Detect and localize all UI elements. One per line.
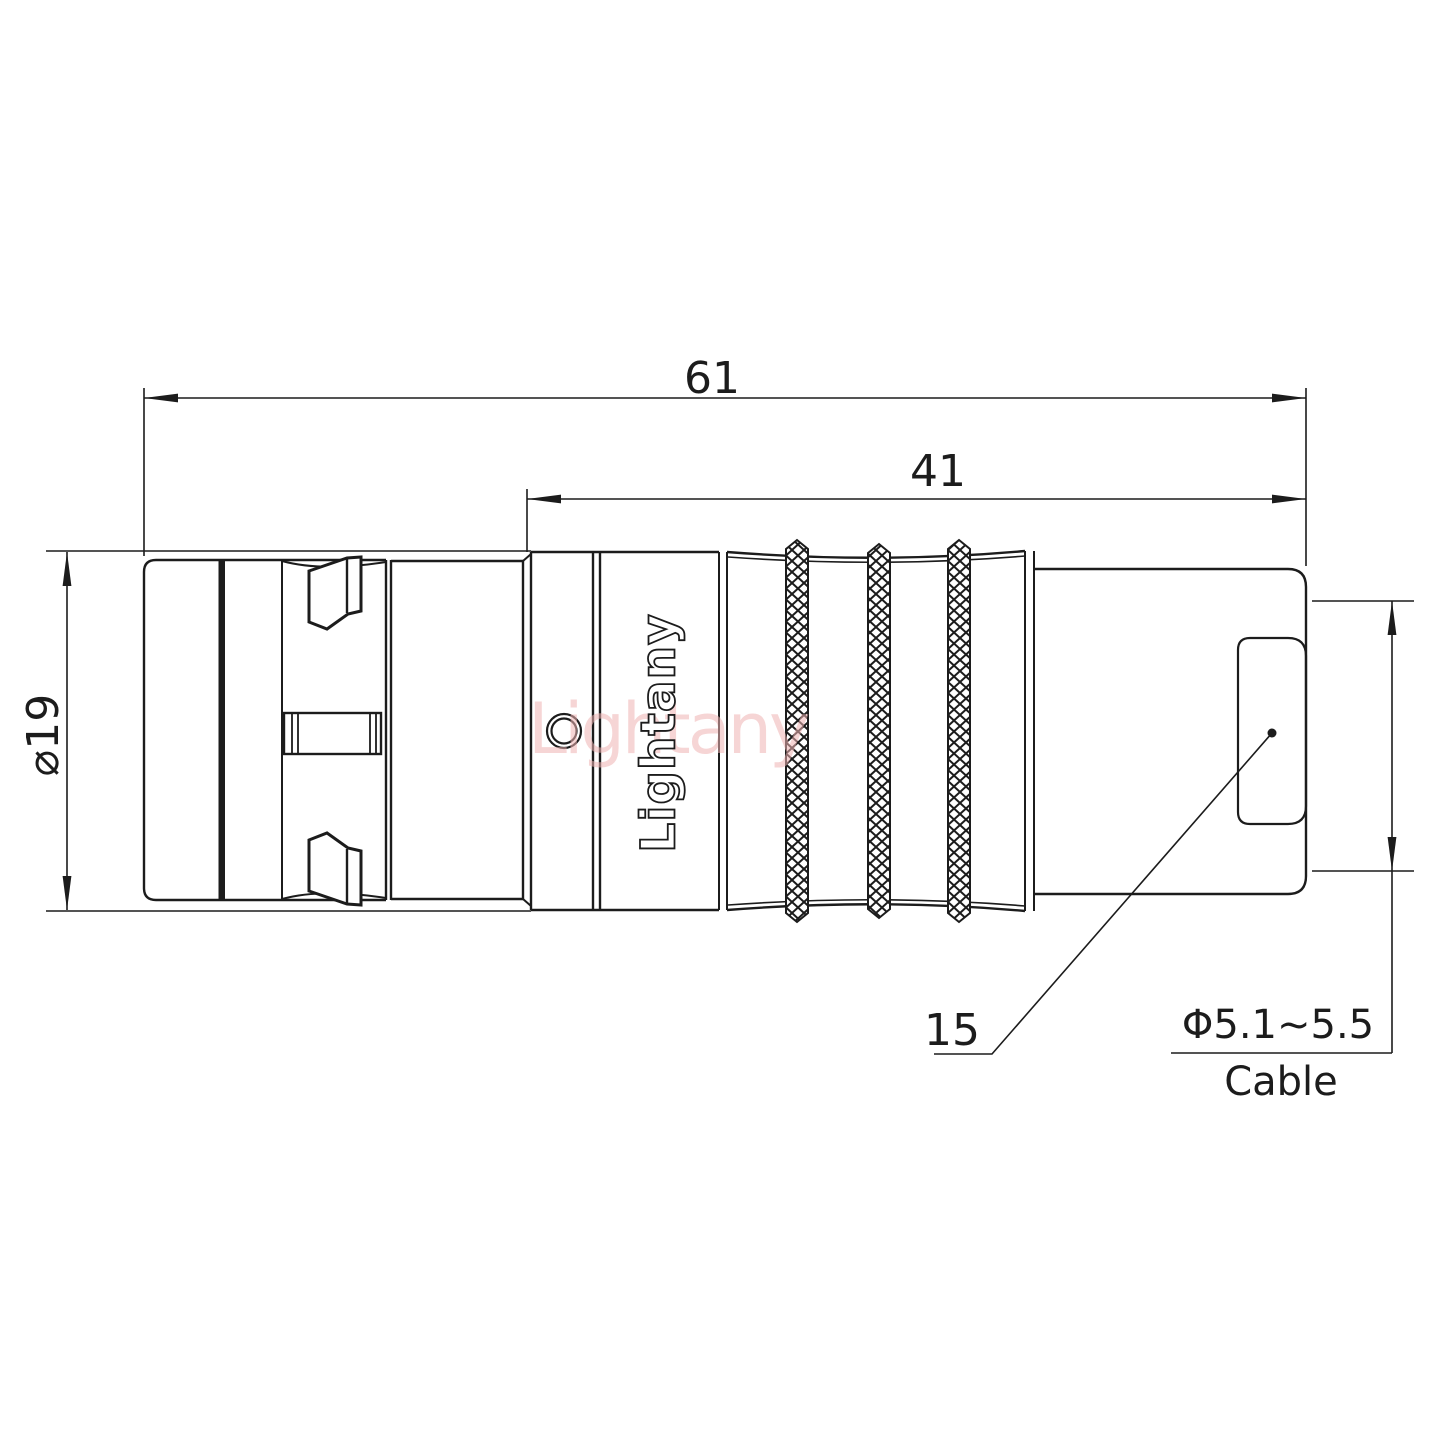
cable-boot bbox=[1034, 569, 1306, 894]
dim-61 bbox=[144, 388, 1306, 566]
dim-label-15: 15 bbox=[924, 1009, 980, 1053]
dim-label-diameter-19: ⌀19 bbox=[22, 694, 66, 776]
drawing-canvas: Lightany Lightany 61 41 ⌀19 15 Φ5.1~5.5 … bbox=[0, 0, 1440, 1440]
arrow-right-icon bbox=[1272, 495, 1306, 504]
arrow-right-icon bbox=[1272, 394, 1306, 403]
barrel-section bbox=[391, 554, 531, 906]
arrow-up-icon bbox=[63, 552, 72, 586]
cable-diameter-label: Φ5.1~5.5 bbox=[1182, 1005, 1374, 1045]
dim-cable bbox=[1171, 601, 1414, 1053]
dim-41 bbox=[527, 489, 1306, 552]
arrow-down-icon bbox=[1388, 837, 1397, 871]
leader-dot-icon bbox=[1268, 729, 1277, 738]
dim-label-61: 61 bbox=[684, 357, 740, 401]
body-logo-text: Lightany bbox=[636, 613, 683, 852]
latch-tab-top bbox=[309, 557, 361, 629]
knurl-band-3 bbox=[948, 540, 970, 922]
arrow-left-icon bbox=[144, 394, 178, 403]
arrow-down-icon bbox=[63, 876, 72, 910]
front-shell-black-band bbox=[219, 561, 226, 899]
latch-slot bbox=[284, 713, 381, 754]
arrow-left-icon bbox=[527, 495, 561, 504]
dim-label-41: 41 bbox=[910, 450, 966, 494]
cable-word-label: Cable bbox=[1224, 1062, 1338, 1102]
arrow-up-icon bbox=[1388, 601, 1397, 635]
latch-tab-bottom bbox=[309, 833, 361, 905]
knurl-band-2 bbox=[868, 544, 890, 918]
